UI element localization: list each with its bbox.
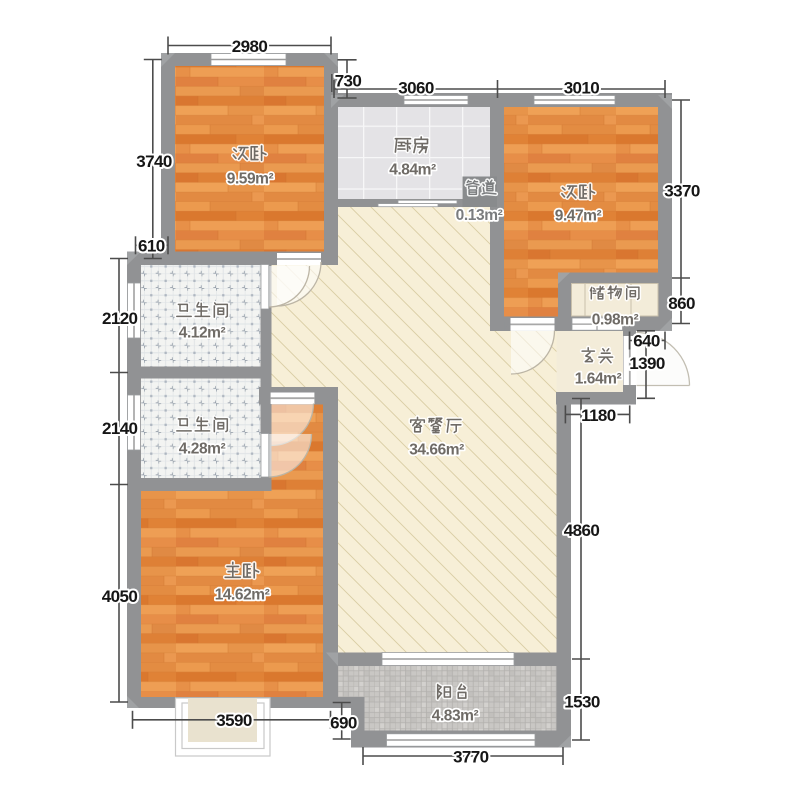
svg-text:3060: 3060 [398, 79, 434, 98]
svg-text:1390: 1390 [629, 354, 665, 373]
svg-text:0.98m²: 0.98m² [592, 312, 639, 329]
svg-text:4.84m²: 4.84m² [389, 162, 436, 179]
svg-text:34.66m²: 34.66m² [409, 442, 464, 459]
svg-text:1530: 1530 [564, 693, 600, 712]
svg-text:1180: 1180 [581, 406, 616, 425]
svg-text:2980: 2980 [232, 37, 268, 56]
svg-text:2140: 2140 [102, 419, 138, 438]
svg-text:730: 730 [335, 71, 362, 90]
svg-text:860: 860 [668, 294, 695, 313]
svg-text:4050: 4050 [102, 587, 138, 606]
svg-text:9.47m²: 9.47m² [555, 208, 602, 225]
svg-text:3010: 3010 [564, 79, 600, 98]
svg-text:690: 690 [330, 713, 357, 732]
svg-text:3590: 3590 [216, 711, 252, 730]
svg-text:4.12m²: 4.12m² [179, 325, 226, 342]
svg-text:3370: 3370 [664, 182, 700, 201]
svg-text:3740: 3740 [136, 152, 172, 171]
svg-text:4.83m²: 4.83m² [432, 708, 479, 725]
svg-text:9.59m²: 9.59m² [227, 171, 274, 188]
svg-text:640: 640 [633, 332, 660, 351]
svg-text:0.13m²: 0.13m² [456, 207, 503, 224]
svg-text:1.64m²: 1.64m² [575, 371, 622, 388]
svg-text:14.62m²: 14.62m² [215, 587, 270, 604]
svg-text:610: 610 [138, 236, 165, 255]
svg-text:4.28m²: 4.28m² [179, 441, 226, 458]
svg-text:4860: 4860 [564, 521, 600, 540]
svg-text:3770: 3770 [453, 748, 489, 767]
svg-text:2120: 2120 [102, 309, 138, 328]
